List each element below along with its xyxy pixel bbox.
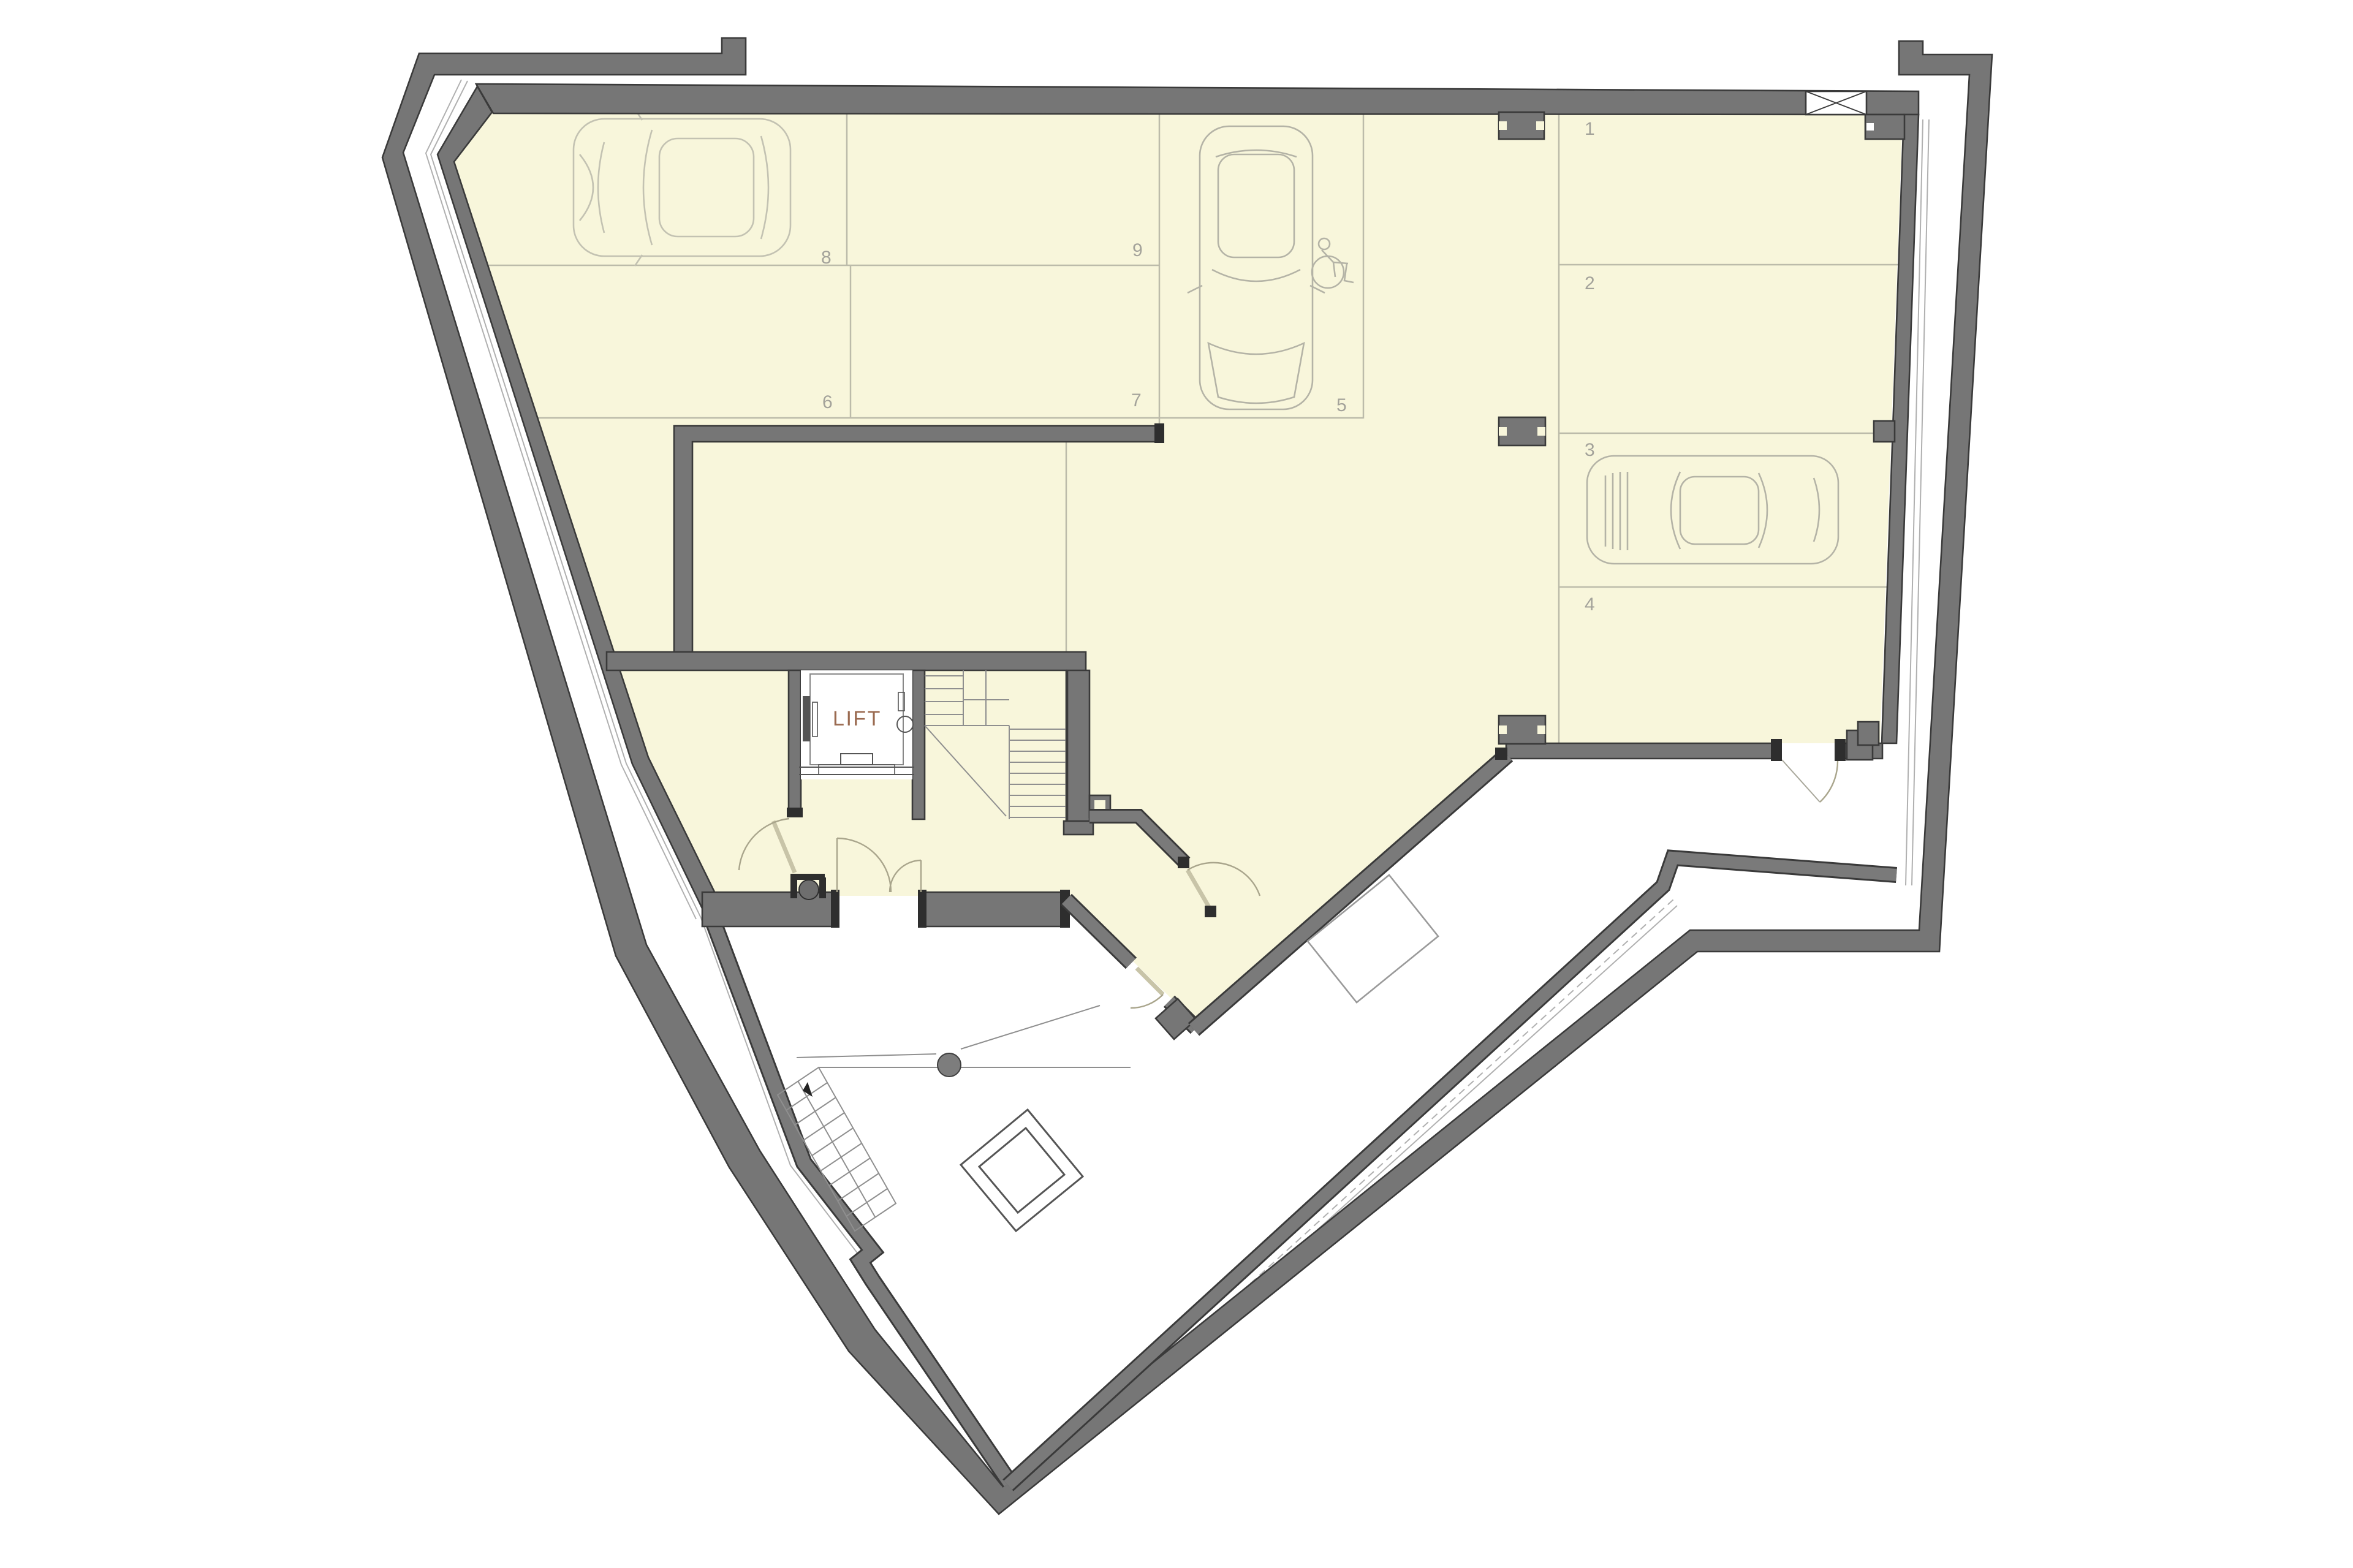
svg-text:2: 2 [1585,273,1595,294]
svg-text:5: 5 [1336,395,1347,415]
svg-text:1: 1 [1585,119,1595,139]
svg-text:6: 6 [822,392,833,412]
svg-text:9: 9 [1132,240,1143,260]
svg-text:4: 4 [1585,594,1595,615]
svg-text:LIFT: LIFT [833,707,882,730]
svg-text:8: 8 [821,248,832,268]
svg-text:3: 3 [1585,440,1595,460]
svg-text:7: 7 [1131,390,1142,411]
